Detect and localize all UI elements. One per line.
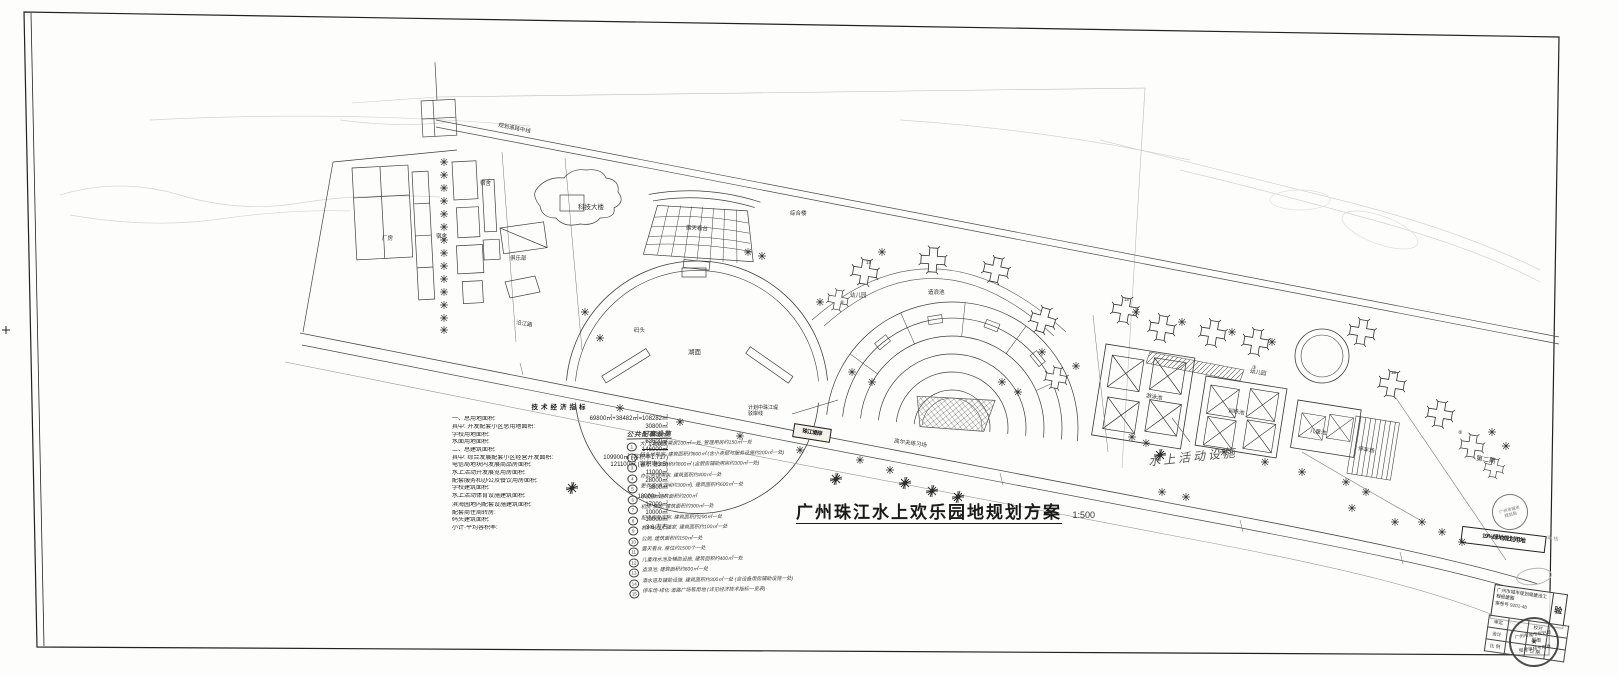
plan-label: 18 (866, 260, 872, 265)
plan-label: 宿舍 (480, 179, 492, 187)
plan-label: 游泳池 (1146, 391, 1164, 402)
plan-label: ⑥ (840, 300, 845, 306)
plan-label: 俱乐部 (510, 254, 527, 262)
plan-label: 湖面 (688, 347, 702, 356)
plan-label: ⑨ (1458, 430, 1463, 436)
top-road (419, 61, 1559, 344)
legend-item: 15停车场·绿化·道路广场等用地 (详见经济技术指标一览表) (629, 587, 807, 599)
drawing-sheet: 科技大楼 宿舍 宿舍 厂房 俱乐部 综合楼 露天看台 湖面 码头 幼儿园 幼儿园… (0, 0, 1619, 677)
plan-label: 综合楼 (790, 209, 807, 217)
plan-label: 18 (1391, 370, 1397, 375)
plan-label: 厂房 (382, 234, 394, 242)
plan-label: 科技大楼 (578, 202, 605, 211)
embankment-note: 计划中珠江堤 驳岸线 (748, 406, 778, 418)
plan-label: 沿江路 (515, 318, 533, 329)
legend-title: 公共配套设施 (627, 431, 672, 440)
plan-label: 码头 (634, 326, 646, 334)
plan-label: 露天看台 (686, 223, 709, 232)
drawing-title: 广州珠江水上欢乐园地规划方案 1:500 (796, 498, 1095, 523)
title-text: 广州珠江水上欢乐园地规划方案 (796, 503, 1062, 524)
scale-label: 1:500 (1072, 510, 1095, 520)
plan-label: 幼儿园 (850, 291, 867, 299)
indicators-title: 技术经济指标 (452, 404, 668, 412)
plan-label: 造浪池 (928, 288, 945, 296)
plan-label: 第二期 (1476, 453, 1497, 465)
topo-contours (60, 88, 1540, 468)
plan-label: 18 (1124, 297, 1130, 302)
indicator-row: 一、总用地面积:69800㎡+38482㎡=108282㎡ (452, 416, 668, 424)
plan-label: 宿舍 (436, 232, 448, 240)
round-pool (1295, 329, 1349, 383)
factory-block (303, 150, 621, 350)
approval-side-note: 审 核 (1547, 534, 1559, 542)
facilities-legend: 公共配套设施 1大门, 附设售票房100㎡一处, 管理用房约150㎡一处 2码头… (627, 428, 808, 600)
plan-label: 儿童池 (1310, 426, 1328, 437)
plan-label: 高尔夫练习场 (894, 437, 928, 450)
site-plan-svg: 科技大楼 宿舍 宿舍 厂房 俱乐部 综合楼 露天看台 湖面 码头 幼儿园 幼儿园… (0, 0, 1619, 677)
plan-label: ③ (1252, 365, 1257, 371)
